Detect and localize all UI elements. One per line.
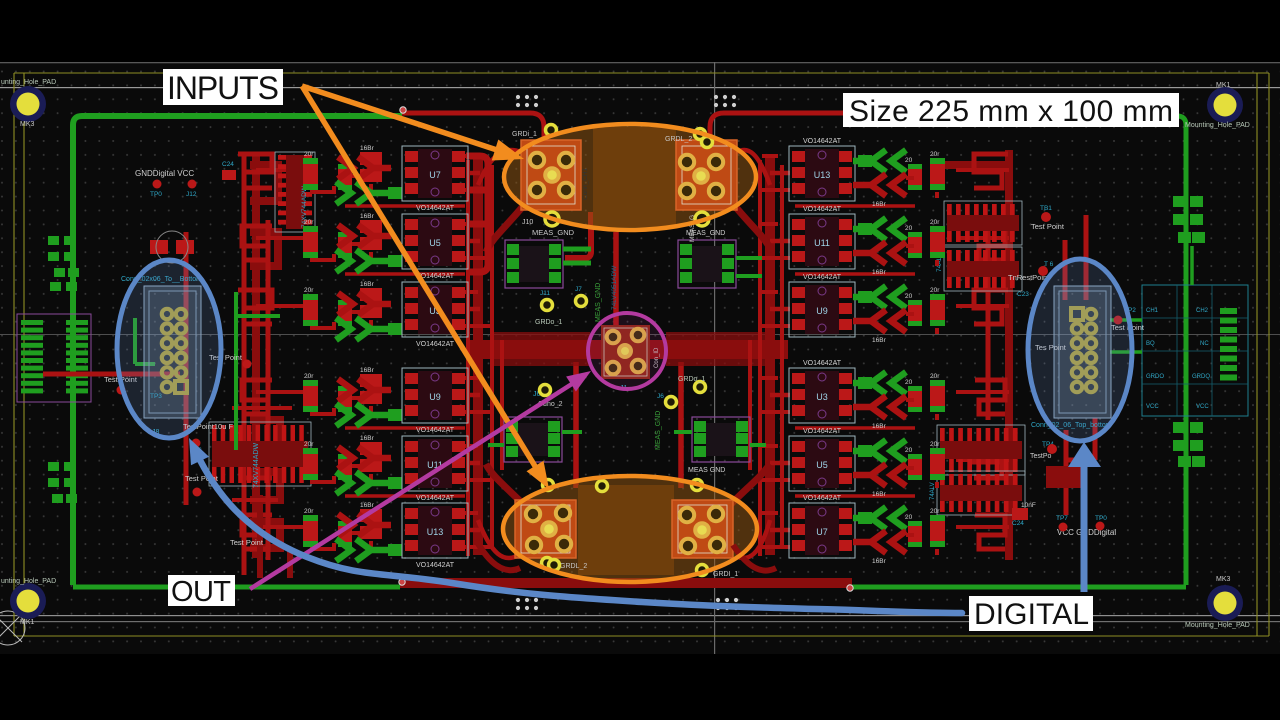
svg-text:MK3: MK3	[1216, 576, 1231, 583]
svg-text:VO14642AT: VO14642AT	[803, 428, 842, 435]
svg-text:TP0: TP0	[150, 191, 162, 198]
svg-text:GRDI_1: GRDI_1	[713, 571, 738, 578]
svg-text:VO14642AT: VO14642AT	[416, 427, 455, 434]
svg-text:20: 20	[905, 225, 913, 232]
svg-text:GRDL_2: GRDL_2	[560, 563, 587, 570]
svg-text:TB1: TB1	[1040, 205, 1052, 212]
svg-text:20r: 20r	[930, 373, 940, 380]
svg-text:TP7: TP7	[1056, 515, 1068, 522]
svg-text:20r: 20r	[304, 151, 314, 158]
svg-text:VCC: VCC	[1146, 404, 1159, 410]
svg-text:20: 20	[905, 514, 913, 521]
svg-text:GRDO: GRDO	[1146, 374, 1164, 380]
svg-text:16Br: 16Br	[872, 491, 887, 498]
svg-text:MEAS GND: MEAS GND	[688, 467, 725, 474]
svg-text:J7: J7	[575, 286, 582, 293]
svg-text:MEAS_GND: MEAS_GND	[595, 283, 602, 322]
svg-text:TestPo: TestPo	[1030, 453, 1052, 460]
svg-text:20r: 20r	[930, 287, 940, 294]
svg-text:20r: 20r	[304, 219, 314, 226]
svg-text:C24: C24	[222, 161, 234, 168]
svg-text:U9: U9	[429, 392, 441, 402]
svg-text:OUT: OUT	[171, 576, 231, 608]
svg-text:VO14642AT: VO14642AT	[803, 206, 842, 213]
svg-text:16Br: 16Br	[872, 269, 887, 276]
svg-text:16Br: 16Br	[872, 423, 887, 430]
svg-text:U7: U7	[816, 527, 828, 537]
svg-text:GRDo_1: GRDo_1	[535, 319, 562, 326]
svg-text:16Br: 16Br	[360, 367, 375, 374]
svg-text:J12: J12	[186, 191, 197, 198]
svg-text:VO14642AT: VO14642AT	[803, 274, 842, 281]
svg-text:U9: U9	[816, 306, 828, 316]
svg-text:20: 20	[905, 157, 913, 164]
svg-text:U13: U13	[427, 527, 444, 537]
svg-text:TP0: TP0	[1095, 515, 1107, 522]
svg-text:U11: U11	[814, 238, 830, 248]
svg-text:16Br: 16Br	[360, 213, 375, 220]
svg-text:Mounting_Hole_PAD: Mounting_Hole_PAD	[1185, 622, 1250, 629]
svg-text:10nF: 10nF	[1021, 502, 1036, 509]
svg-text:Test Point: Test Point	[1031, 222, 1065, 231]
svg-text:Mounting_Hole_PAD: Mounting_Hole_PAD	[1185, 122, 1250, 129]
svg-text:VO14642AT: VO14642AT	[416, 341, 455, 348]
svg-text:74LV4051ADW: 74LV4051ADW	[611, 265, 618, 310]
svg-text:GRDo_1: GRDo_1	[678, 376, 705, 383]
svg-text:Conn_CH1: Conn_CH1	[582, 167, 589, 200]
svg-text:VCC: VCC	[1196, 404, 1209, 410]
svg-text:GRDi_1: GRDi_1	[512, 131, 537, 138]
svg-text:16Br: 16Br	[872, 558, 887, 565]
svg-text:16Br: 16Br	[872, 201, 887, 208]
svg-text:MK1: MK1	[1216, 82, 1231, 89]
svg-text:BQ: BQ	[1146, 341, 1155, 347]
svg-text:GRDQ: GRDQ	[1192, 374, 1210, 380]
svg-text:unting_Hole_PAD: unting_Hole_PAD	[1, 578, 56, 585]
svg-text:20: 20	[905, 379, 913, 386]
svg-text:Test Point: Test Point	[230, 538, 264, 547]
svg-text:16Br: 16Br	[360, 281, 375, 288]
svg-text:U7: U7	[429, 170, 441, 180]
svg-text:20r: 20r	[304, 508, 314, 515]
svg-text:VO14642AT: VO14642AT	[416, 205, 455, 212]
svg-text:MEAS_GND: MEAS_GND	[532, 228, 575, 237]
svg-text:NC: NC	[1200, 341, 1209, 347]
svg-text:20r: 20r	[930, 441, 940, 448]
svg-text:VO14642AT: VO14642AT	[416, 562, 455, 569]
svg-text:20r: 20r	[930, 508, 940, 515]
svg-text:U5: U5	[429, 238, 441, 248]
svg-text:20: 20	[905, 447, 913, 454]
svg-text:74XV744ADW: 74XV744ADW	[253, 442, 260, 488]
svg-text:GNDDigital VCC: GNDDigital VCC	[135, 169, 194, 178]
svg-text:J11: J11	[540, 290, 550, 297]
svg-text:20r: 20r	[304, 373, 314, 380]
svg-text:VO14642AT: VO14642AT	[803, 495, 842, 502]
svg-text:U13: U13	[814, 170, 831, 180]
svg-text:unting_Hole_PAD: unting_Hole_PAD	[1, 79, 56, 86]
svg-text:VO14642AT: VO14642AT	[803, 360, 842, 367]
svg-text:U5: U5	[816, 460, 828, 470]
svg-text:VO14642AT: VO14642AT	[416, 495, 455, 502]
svg-text:16Br: 16Br	[872, 337, 887, 344]
svg-text:J6: J6	[657, 393, 664, 400]
svg-text:20r: 20r	[930, 151, 940, 158]
svg-text:Size 225 mm x 100 mm: Size 225 mm x 100 mm	[849, 95, 1173, 128]
svg-text:16Br: 16Br	[360, 502, 375, 509]
svg-text:MK3: MK3	[20, 121, 35, 128]
svg-text:DIGITAL: DIGITAL	[974, 598, 1089, 631]
svg-text:CH2: CH2	[1196, 308, 1209, 314]
svg-text:GRDL_2: GRDL_2	[665, 136, 692, 143]
svg-text:20r: 20r	[304, 441, 314, 448]
svg-text:INPUTS: INPUTS	[167, 70, 279, 106]
svg-text:C23: C23	[1017, 291, 1029, 298]
svg-text:16Br: 16Br	[360, 435, 375, 442]
svg-text:VO14642AT: VO14642AT	[803, 138, 842, 145]
svg-text:MEAS_GND: MEAS_GND	[655, 411, 662, 450]
svg-text:16Br: 16Br	[360, 145, 375, 152]
svg-text:20: 20	[905, 293, 913, 300]
svg-text:U3: U3	[816, 392, 828, 402]
svg-text:MK1: MK1	[20, 619, 35, 626]
svg-text:C24: C24	[1012, 520, 1024, 527]
svg-text:CH1: CH1	[1146, 308, 1159, 314]
svg-text:20r: 20r	[930, 219, 940, 226]
svg-text:20r: 20r	[304, 287, 314, 294]
svg-text:J10: J10	[522, 219, 533, 226]
